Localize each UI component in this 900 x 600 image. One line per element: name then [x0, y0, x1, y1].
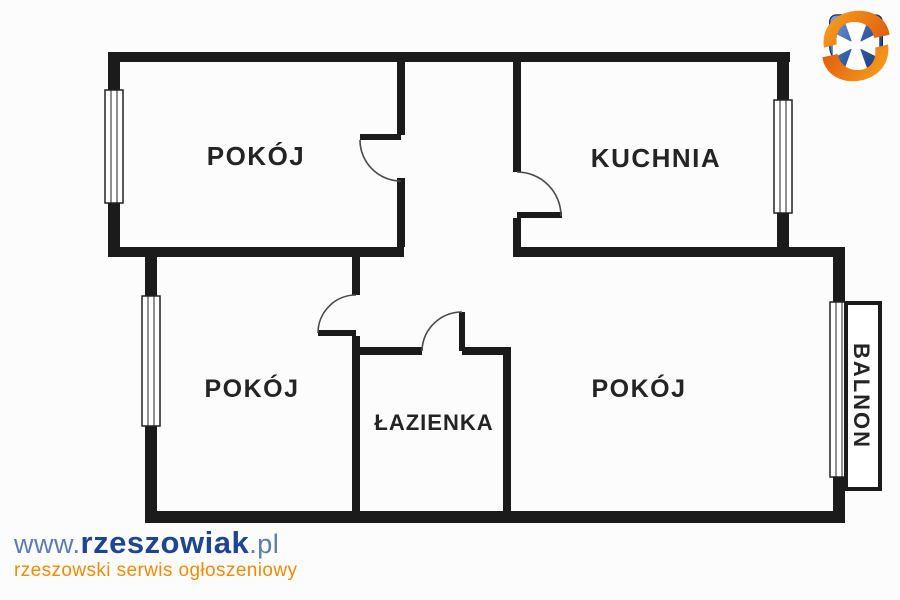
watermark-url-name: rzeszowiak [81, 525, 250, 560]
room-label-bathroom: ŁAZIENKA [374, 410, 493, 435]
wall-room1-right-lower [397, 178, 405, 247]
watermark: www.rzeszowiak.pl rzeszowski serwis ogło… [14, 527, 297, 580]
window-room1-left [105, 90, 123, 203]
wall-middle-right [513, 247, 845, 257]
door-room2-arc [318, 295, 356, 333]
door-kitchen-leaf [517, 212, 562, 218]
wall-bathroom-left-upper [352, 247, 360, 295]
walls [108, 52, 845, 523]
watermark-url-suffix: .pl [249, 529, 279, 559]
door-room1-arc [360, 140, 401, 181]
window-kitchen-right [774, 100, 792, 213]
door-bathroom-arc [422, 312, 462, 351]
wall-top [108, 52, 790, 62]
door-room1-leaf [360, 134, 401, 140]
door-room2-leaf [318, 330, 356, 336]
wall-left-lower-a [145, 247, 157, 296]
wall-left-lower-b [145, 426, 157, 523]
watermark-tagline: rzeszowski serwis ogłoszeniowy [14, 561, 297, 580]
room-label-kitchen: KUCHNIA [591, 143, 721, 173]
wall-bottom [145, 511, 845, 523]
wall-right-kitchen-a [777, 52, 789, 100]
wall-room1-right-upper [397, 62, 405, 135]
wall-kitchen-left-upper [513, 62, 521, 172]
wall-bathroom-top-left [352, 347, 422, 355]
room-label-balcony: BALNON [849, 343, 874, 449]
wall-right-lower-b [833, 477, 845, 523]
floorplan-image: POKÓJ KUCHNIA POKÓJ ŁAZIENKA POKÓJ BALNO… [0, 0, 900, 600]
doors [318, 134, 562, 351]
wall-bathroom-right [503, 347, 511, 523]
floor-plan: POKÓJ KUCHNIA POKÓJ ŁAZIENKA POKÓJ BALNO… [0, 0, 900, 600]
room-label-top-left: POKÓJ [207, 141, 306, 171]
watermark-url-prefix: www. [14, 529, 81, 559]
wall-left-upper-a [108, 52, 120, 90]
wall-right-lower-a [833, 247, 845, 302]
wall-kitchen-left-lower [513, 218, 521, 247]
window-room2-left [142, 296, 160, 426]
room-label-bottom-left: POKÓJ [204, 373, 299, 403]
room-label-bottom-right: POKÓJ [591, 373, 686, 403]
rzeszowiak-logo-icon [816, 6, 896, 86]
door-kitchen-arc [517, 172, 561, 216]
wall-bathroom-left-lower [352, 336, 360, 523]
watermark-url: www.rzeszowiak.pl [14, 527, 297, 558]
wall-right-kitchen-b [777, 213, 789, 257]
door-bathroom-leaf [459, 312, 465, 351]
